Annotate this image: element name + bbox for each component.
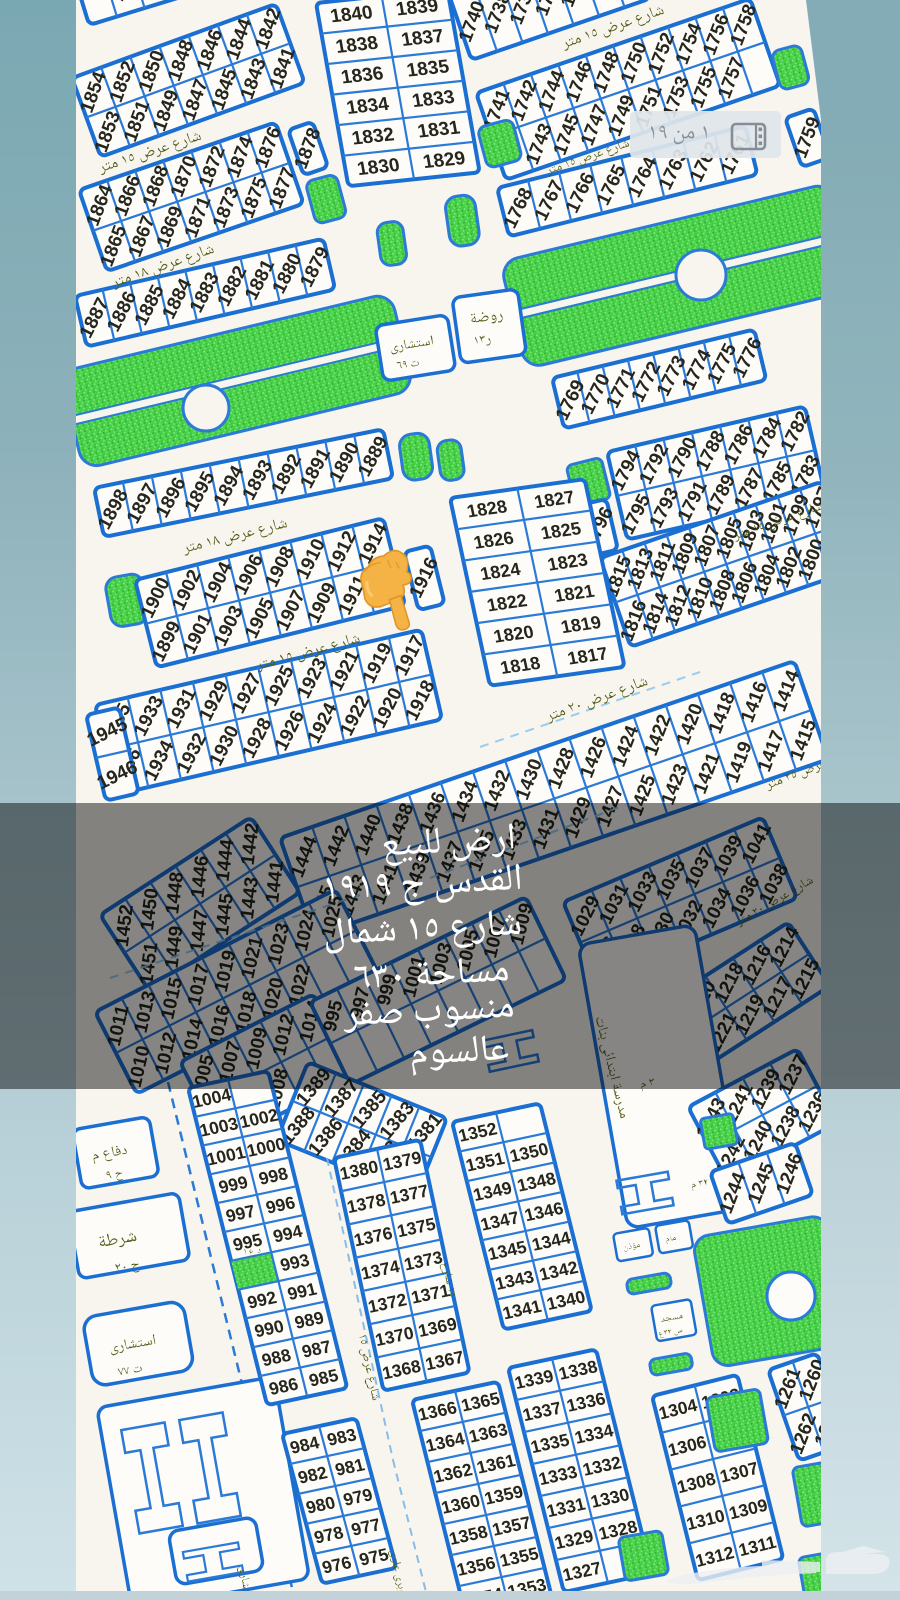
- svg-text:1838: 1838: [334, 33, 380, 58]
- svg-text:1835: 1835: [405, 56, 451, 81]
- svg-text:1831: 1831: [416, 117, 462, 142]
- svg-text:1836: 1836: [339, 63, 385, 88]
- svg-text:1837: 1837: [400, 26, 446, 51]
- svg-text:1830: 1830: [356, 155, 402, 180]
- svg-text:1834: 1834: [345, 94, 391, 119]
- svg-text:1829: 1829: [421, 148, 467, 173]
- svg-text:1840: 1840: [329, 2, 375, 27]
- svg-text:1832: 1832: [350, 124, 396, 149]
- svg-text:1833: 1833: [411, 87, 457, 112]
